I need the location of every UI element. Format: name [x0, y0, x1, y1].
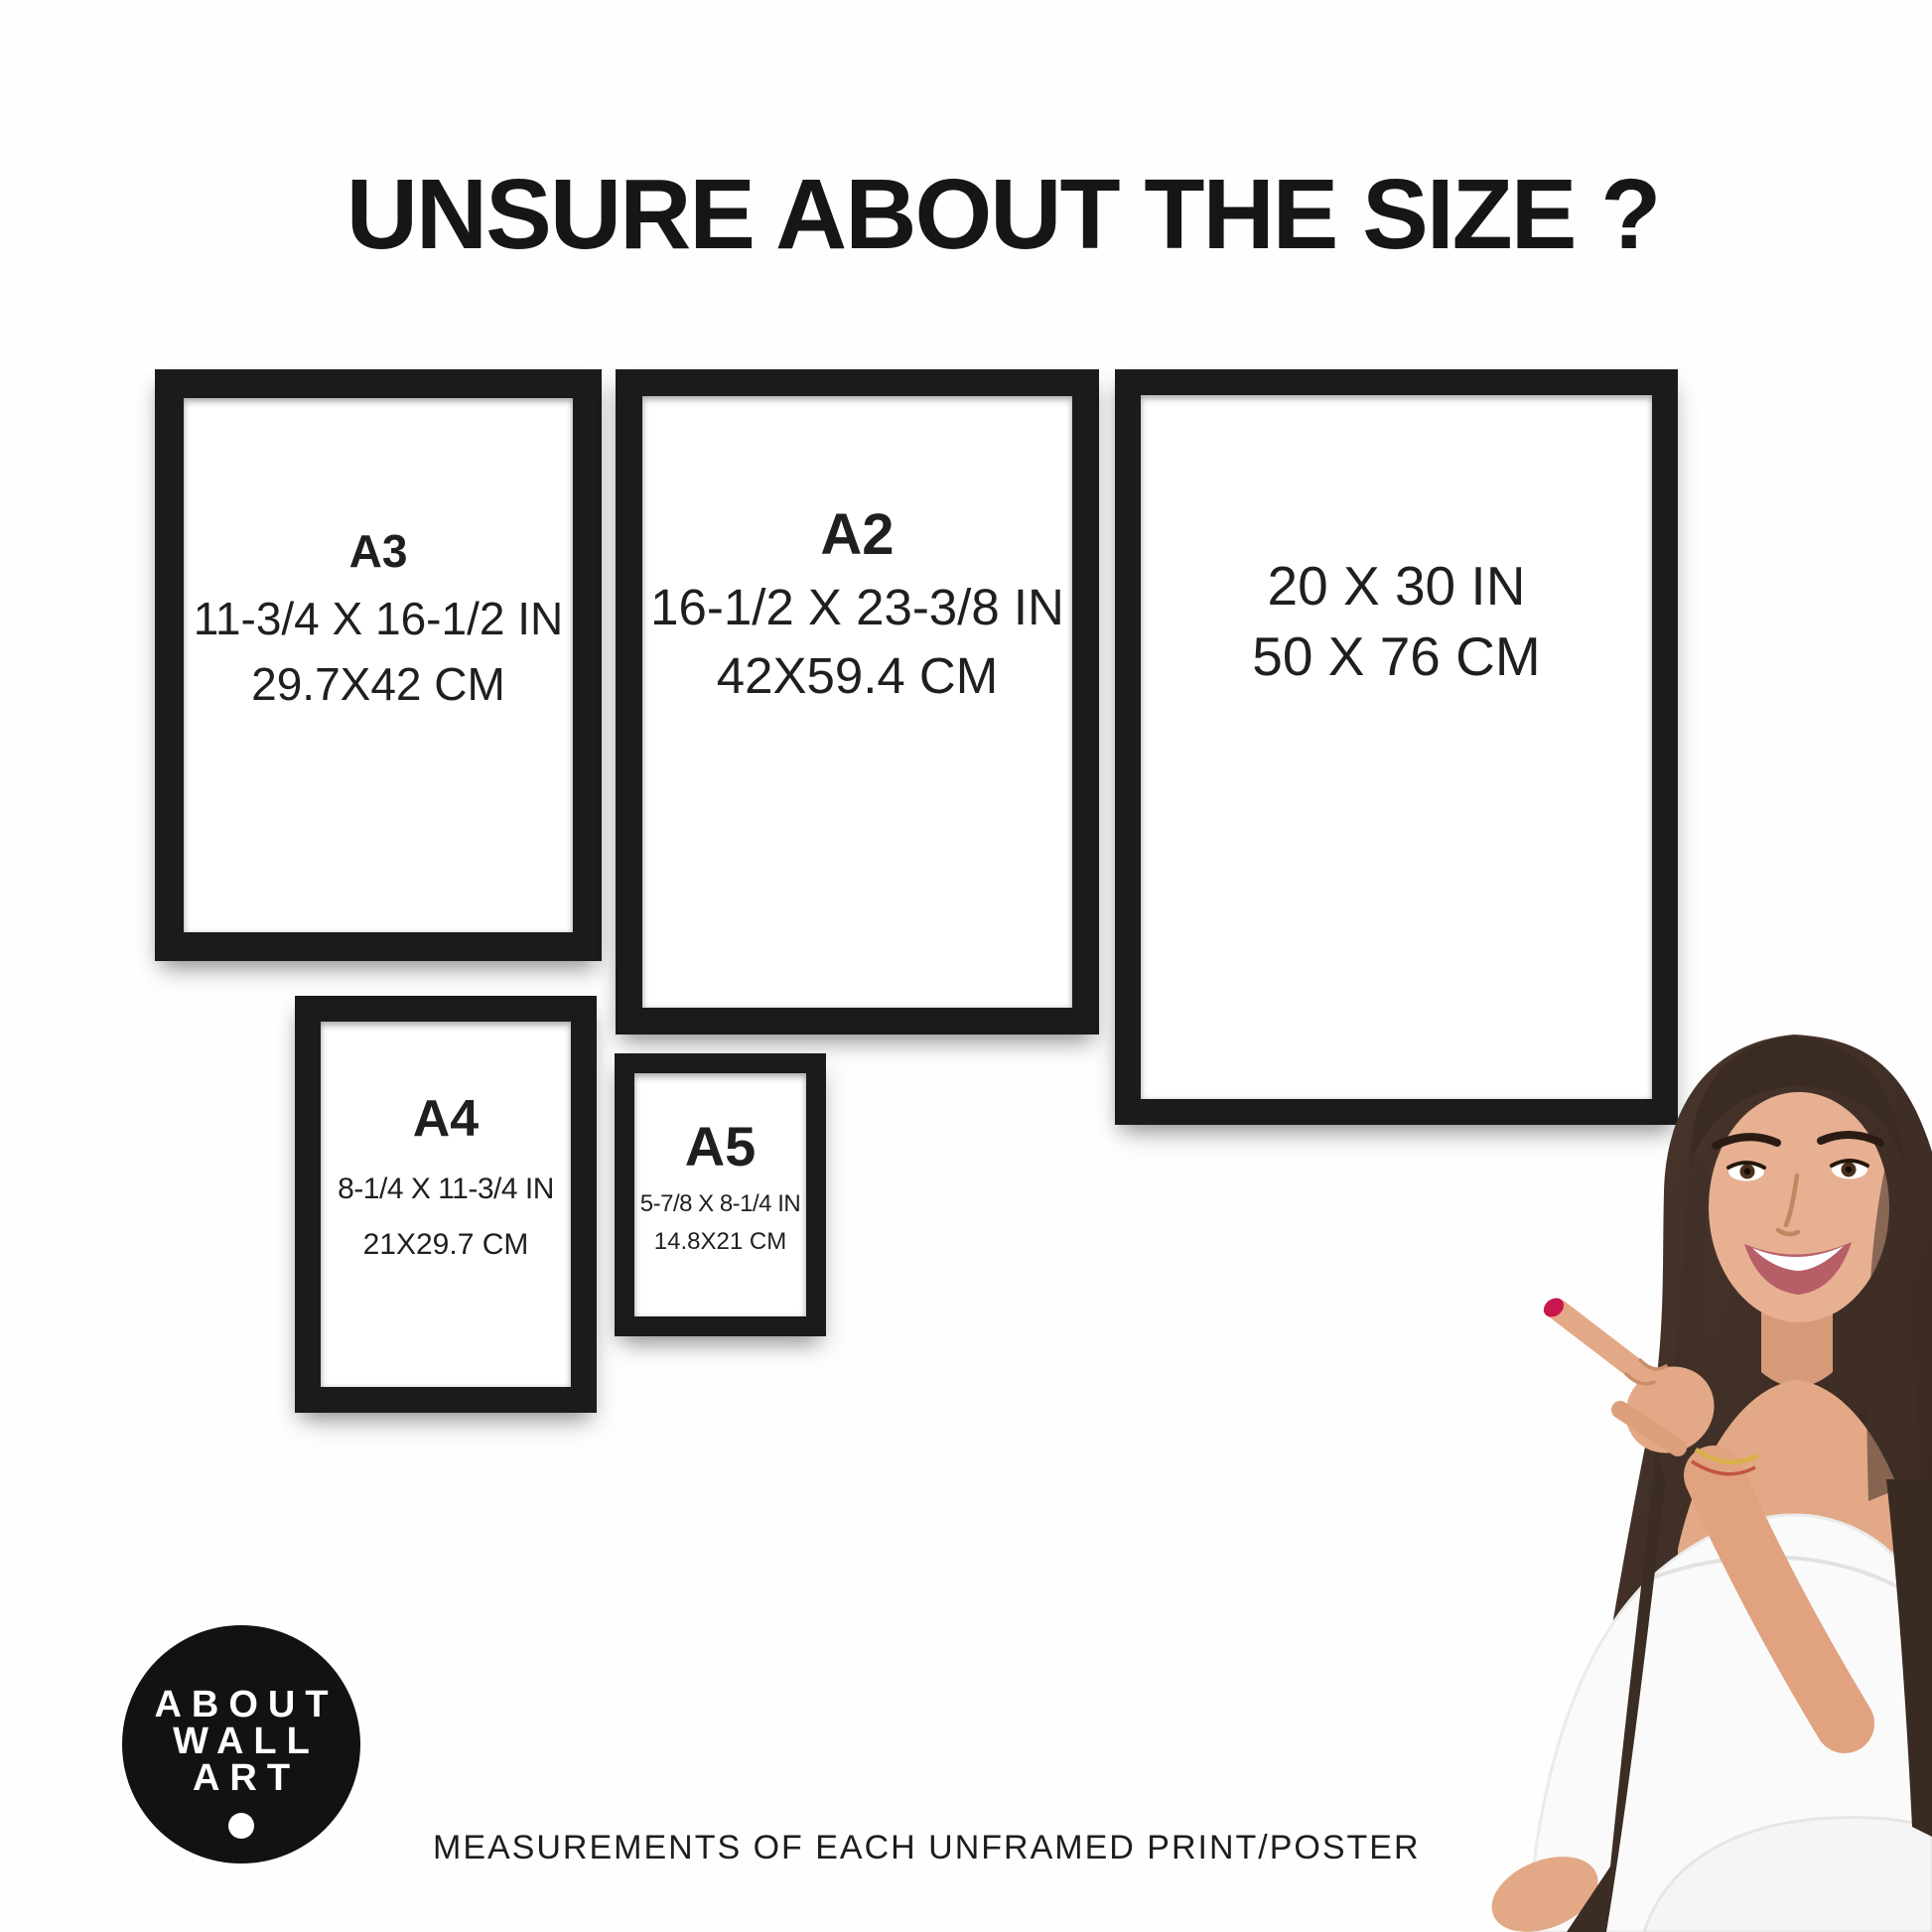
size-cm: 50 X 76 CM: [1252, 624, 1540, 688]
footer-caption: MEASUREMENTS OF EACH UNFRAMED PRINT/POST…: [433, 1829, 1356, 1867]
brand-logo: ABOUT WALL ART: [122, 1625, 360, 1863]
size-cm: 21X29.7 CM: [363, 1228, 529, 1262]
size-label: A3: [349, 524, 408, 578]
frame-a3: A3 11-3/4 X 16-1/2 IN 29.7X42 CM: [155, 369, 602, 961]
size-inches: 20 X 30 IN: [1268, 554, 1526, 618]
logo-dot-icon: [228, 1813, 254, 1839]
left-eye: [1728, 1163, 1764, 1181]
right-eye: [1832, 1161, 1867, 1179]
page-title: UNSURE ABOUT THE SIZE ?: [37, 158, 1932, 272]
woman-photo: [1350, 1013, 1932, 1932]
frame-a2-text: A2 16-1/2 X 23-3/8 IN 42X59.4 CM: [642, 297, 1072, 908]
logo-line-about: ABOUT: [144, 1687, 338, 1724]
size-inches: 11-3/4 X 16-1/2 IN: [194, 592, 563, 645]
frame-a4: A4 8-1/4 X 11-3/4 IN 21X29.7 CM: [295, 996, 597, 1413]
size-cm: 14.8X21 CM: [654, 1228, 786, 1256]
size-cm: 29.7X42 CM: [251, 657, 505, 711]
size-inches: 8-1/4 X 11-3/4 IN: [338, 1173, 554, 1206]
frame-a4-text: A4 8-1/4 X 11-3/4 IN 21X29.7 CM: [321, 993, 571, 1358]
logo-line-wall: WALL: [163, 1724, 320, 1760]
logo-line-art: ART: [183, 1760, 300, 1797]
frame-20x30-text: 20 X 30 IN 50 X 76 CM: [1141, 269, 1652, 973]
frame-a5: A5 5-7/8 X 8-1/4 IN 14.8X21 CM: [615, 1053, 826, 1336]
size-label: A5: [685, 1114, 757, 1178]
frame-a2: A2 16-1/2 X 23-3/8 IN 42X59.4 CM: [616, 369, 1099, 1035]
frame-20x30: 20 X 30 IN 50 X 76 CM: [1115, 369, 1678, 1125]
frame-a3-text: A3 11-3/4 X 16-1/2 IN 29.7X42 CM: [184, 350, 573, 885]
index-finger: [1559, 1311, 1652, 1382]
frame-a5-text: A5 5-7/8 X 8-1/4 IN 14.8X21 CM: [634, 1063, 806, 1307]
size-label: A4: [413, 1089, 479, 1149]
size-cm: 42X59.4 CM: [717, 646, 999, 705]
size-inches: 5-7/8 X 8-1/4 IN: [640, 1190, 800, 1218]
size-label: A2: [820, 501, 894, 568]
size-inches: 16-1/2 X 23-3/8 IN: [650, 578, 1064, 636]
